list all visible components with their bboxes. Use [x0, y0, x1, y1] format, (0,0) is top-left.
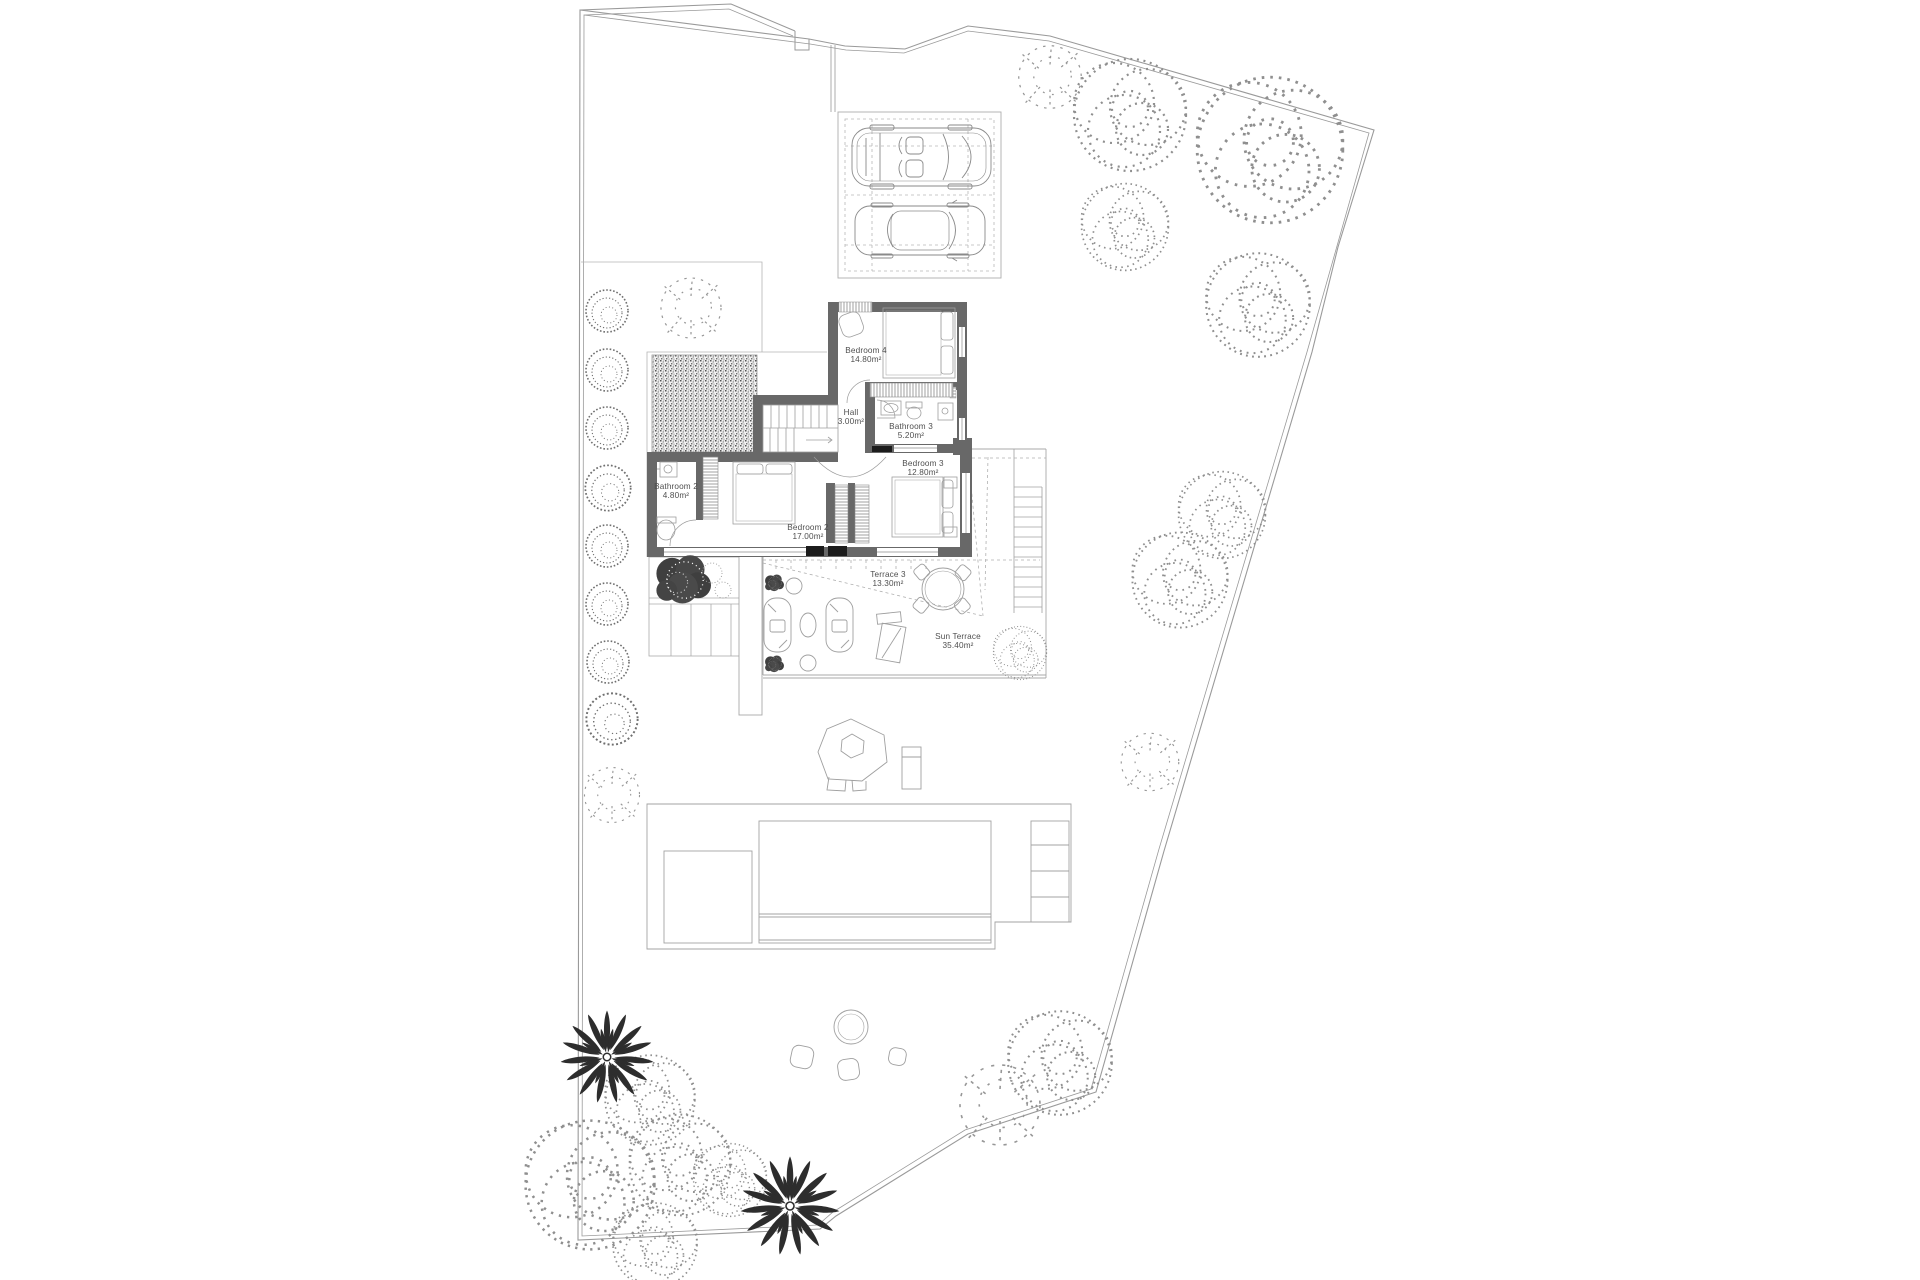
room-area: 3.00m² — [838, 418, 864, 427]
deck-planter — [656, 555, 711, 603]
bath3-fixtures — [881, 401, 953, 420]
pool-area — [647, 804, 1071, 949]
palm-tree — [740, 1156, 839, 1255]
room-label-bathroom2: Bathroom 2 4.80m² — [654, 483, 698, 501]
room-area: 14.80m² — [845, 356, 886, 365]
room-label-hall: Hall 3.00m² — [838, 409, 864, 427]
bed2-furniture — [733, 462, 795, 524]
room-area: 12.80m² — [902, 469, 943, 478]
car-convertible — [852, 125, 991, 189]
plot-boundary — [578, 4, 1374, 1240]
bed4-furniture — [837, 308, 955, 378]
tree — [1019, 46, 1082, 109]
room-label-sun-terrace: Sun Terrace 35.40m² — [935, 633, 981, 651]
room-label-bathroom3: Bathroom 3 5.20m² — [889, 423, 933, 441]
pool-steps — [1031, 821, 1069, 922]
parking-bay-markings — [845, 119, 994, 271]
room-label-terrace3: Terrace 3 13.30m² — [870, 571, 905, 589]
privacy-wall — [739, 556, 762, 715]
outdoor-stairs — [1014, 449, 1042, 613]
bed3-furniture — [892, 477, 957, 537]
room-area: 35.40m² — [935, 642, 981, 651]
stepping-stones — [789, 1010, 907, 1081]
room-area: 4.80m² — [654, 492, 698, 501]
palm-tree — [560, 1011, 653, 1104]
room-label-bedroom4: Bedroom 4 14.80m² — [845, 347, 886, 365]
room-area: 5.20m² — [889, 432, 933, 441]
terrace-shrub — [993, 626, 1046, 679]
interior-stairs — [763, 405, 838, 452]
room-label-bedroom3: Bedroom 3 12.80m² — [902, 460, 943, 478]
site-plan-page: Bedroom 4 14.80m² Hall 3.00m² Bathroom 3… — [0, 0, 1920, 1280]
gazebo — [818, 719, 921, 791]
dining-set — [912, 563, 972, 615]
sun-terrace-slab — [763, 449, 1046, 678]
folding-lounger — [876, 612, 906, 663]
hedge-row — [585, 290, 637, 745]
room-label-bedroom2: Bedroom 2 17.00m² — [787, 524, 828, 542]
room-area: 13.30m² — [870, 580, 905, 589]
room-area: 17.00m² — [787, 533, 828, 542]
gravel-patch — [652, 355, 757, 452]
car-coupe — [855, 200, 985, 261]
bath2-fixtures — [657, 462, 677, 540]
